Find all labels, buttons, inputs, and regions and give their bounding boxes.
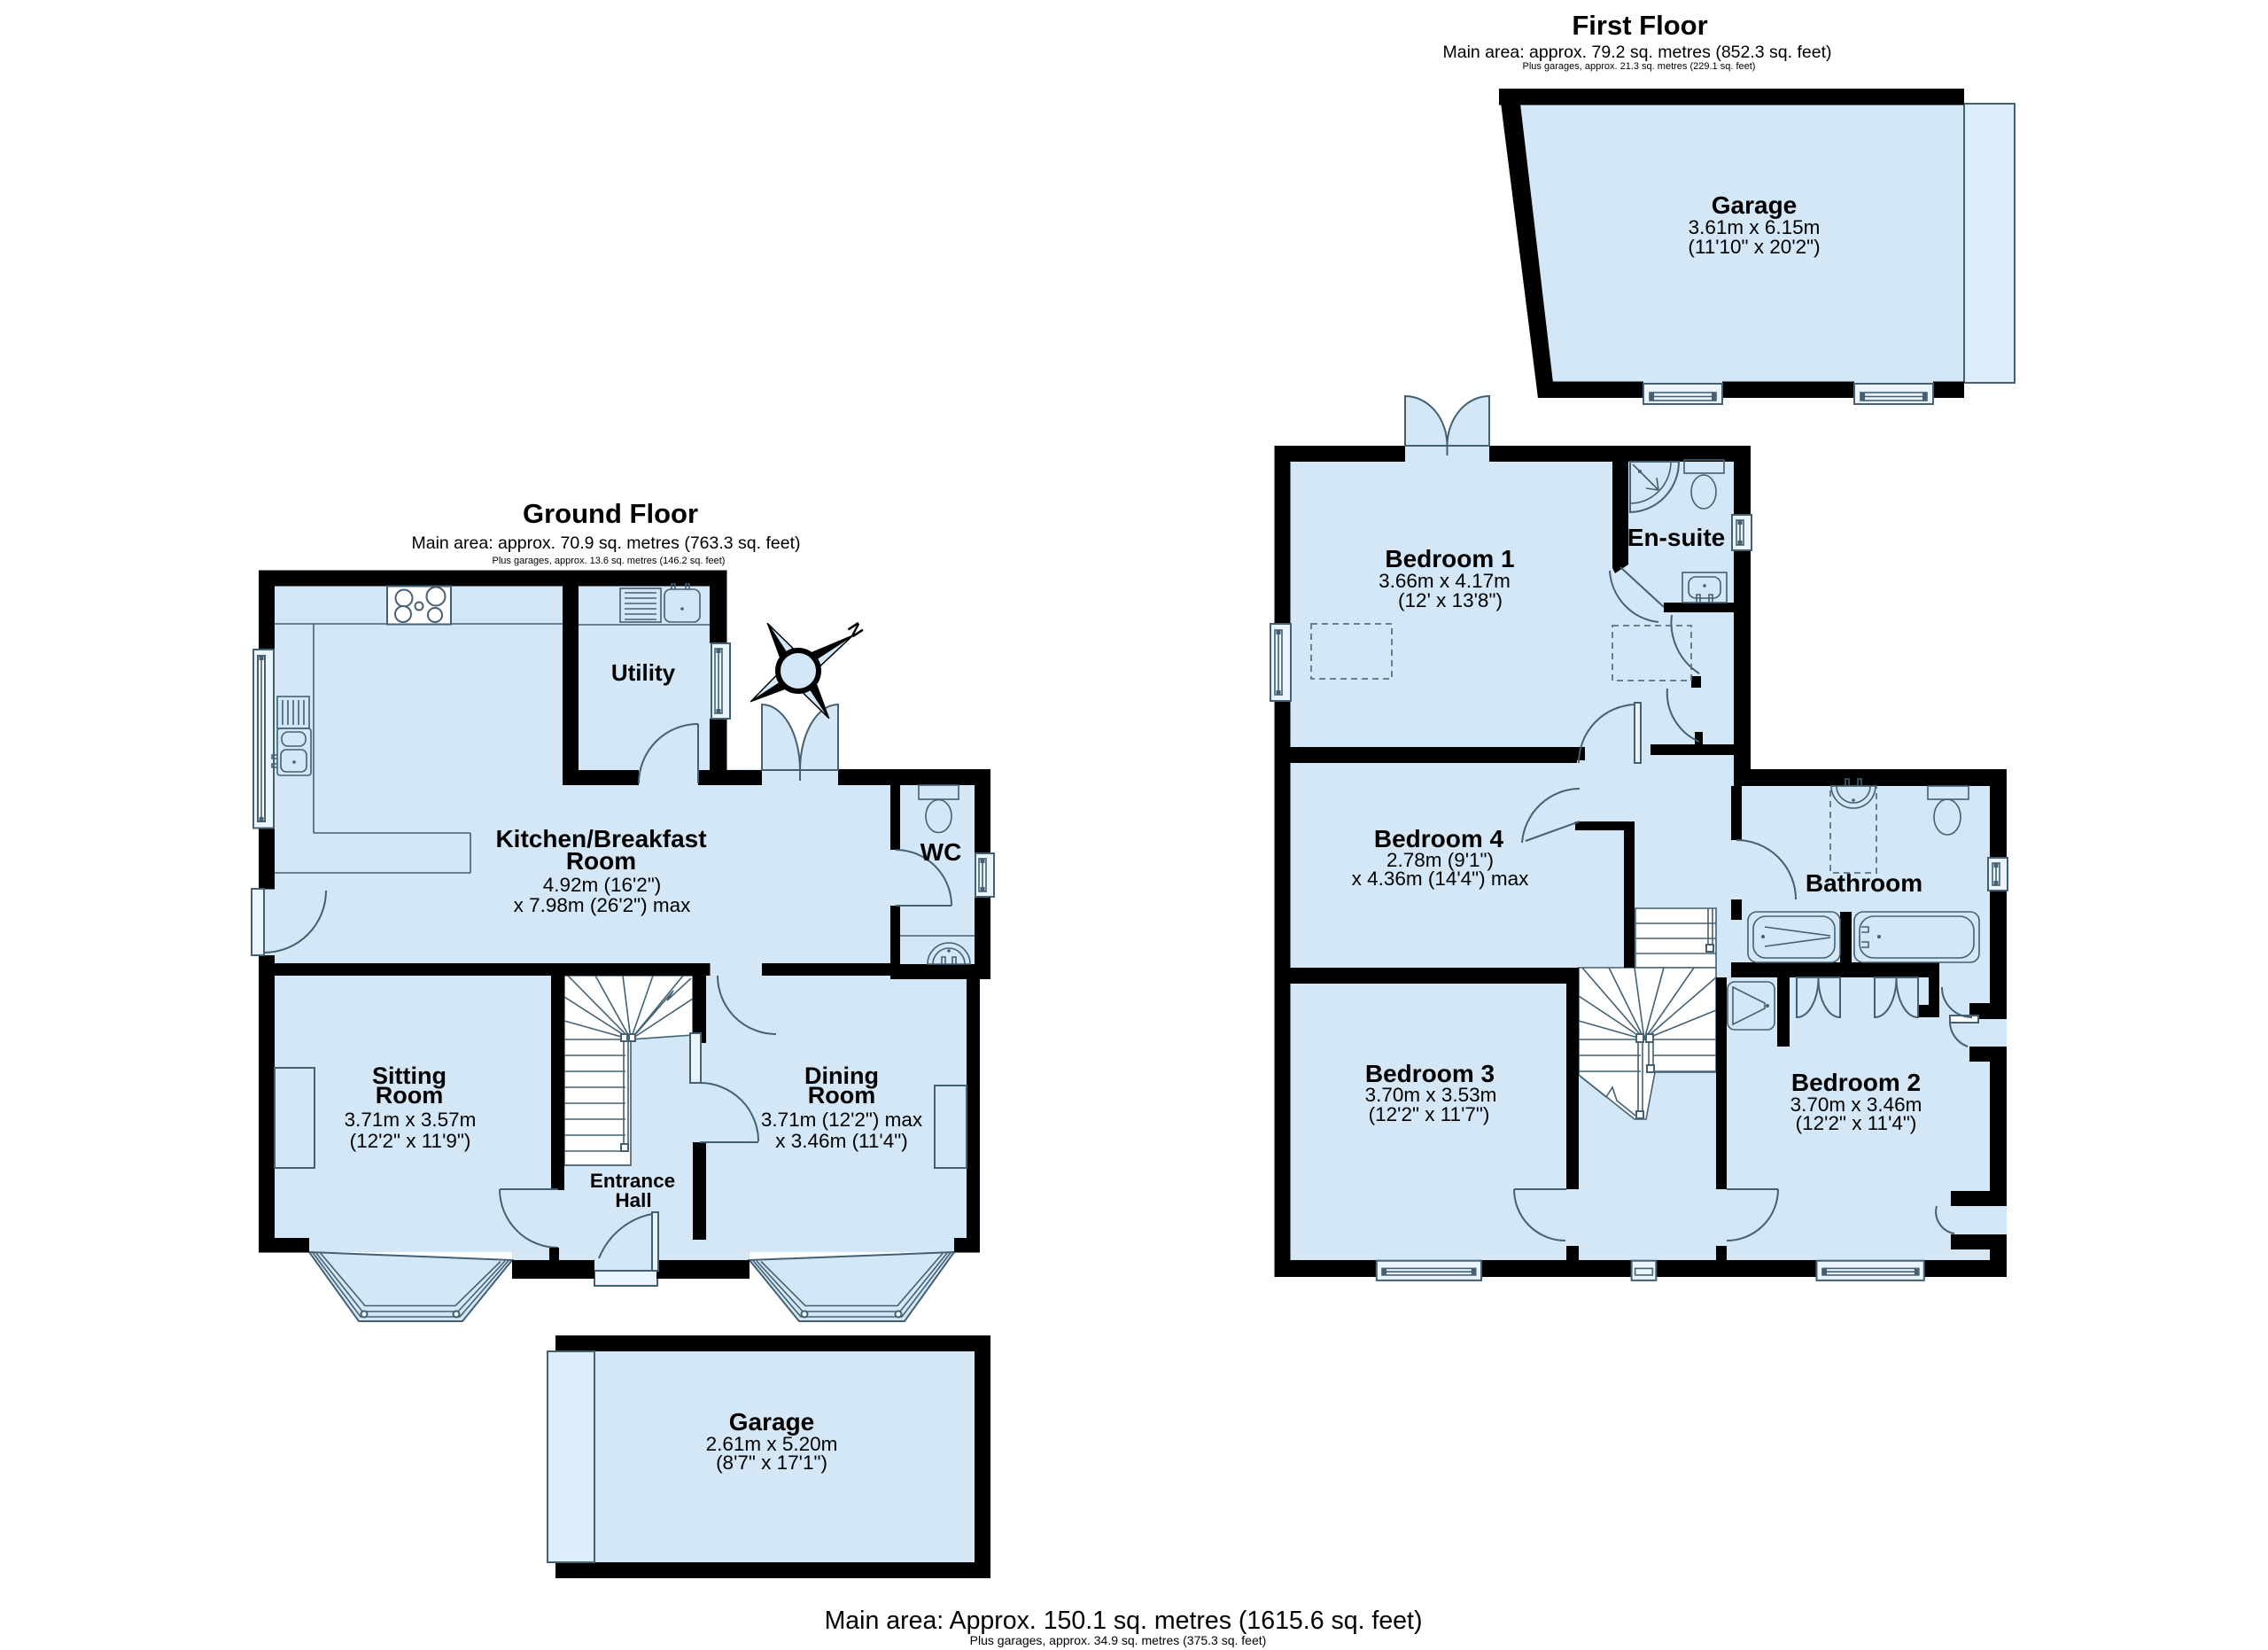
svg-text:x 3.46m (11'4"): x 3.46m (11'4") xyxy=(775,1130,907,1152)
svg-text:Main area: approx. 70.9 sq. me: Main area: approx. 70.9 sq. metres (763.… xyxy=(412,533,801,553)
svg-text:Garage: Garage xyxy=(729,1408,815,1436)
svg-text:Plus garages, approx. 34.9 sq.: Plus garages, approx. 34.9 sq. metres (3… xyxy=(970,1633,1267,1647)
svg-text:(12'2" x 11'4"): (12'2" x 11'4") xyxy=(1796,1112,1917,1134)
svg-text:Room: Room xyxy=(566,847,636,875)
svg-text:Room: Room xyxy=(808,1082,876,1109)
svg-text:(12'2" x 11'7"): (12'2" x 11'7") xyxy=(1369,1103,1490,1125)
svg-text:Ground Floor: Ground Floor xyxy=(523,498,698,529)
svg-text:WC: WC xyxy=(920,838,962,866)
svg-text:3.71m (12'2") max: 3.71m (12'2") max xyxy=(761,1109,923,1131)
svg-text:Bedroom 2: Bedroom 2 xyxy=(1791,1069,1921,1096)
svg-text:Bathroom: Bathroom xyxy=(1806,869,1922,897)
svg-text:Main area: approx. 79.2 sq. me: Main area: approx. 79.2 sq. metres (852.… xyxy=(1443,43,1832,62)
svg-text:Plus garages, approx. 13.6 sq.: Plus garages, approx. 13.6 sq. metres (1… xyxy=(493,556,726,566)
svg-text:Plus garages, approx. 21.3 sq.: Plus garages, approx. 21.3 sq. metres (2… xyxy=(1523,61,1756,72)
svg-text:(11'10" x 20'2"): (11'10" x 20'2") xyxy=(1688,236,1820,258)
svg-text:3.71m x 3.57m: 3.71m x 3.57m xyxy=(345,1109,477,1131)
svg-text:Room: Room xyxy=(376,1082,444,1109)
svg-text:(8'7" x 17'1"): (8'7" x 17'1") xyxy=(716,1452,827,1474)
svg-text:Utility: Utility xyxy=(611,659,676,686)
svg-text:x 4.36m (14'4") max: x 4.36m (14'4") max xyxy=(1352,868,1530,890)
svg-text:Hall: Hall xyxy=(615,1189,651,1211)
svg-text:En-suite: En-suite xyxy=(1627,524,1725,551)
svg-text:First Floor: First Floor xyxy=(1572,10,1707,41)
svg-text:4.92m (16'2"): 4.92m (16'2") xyxy=(543,874,662,896)
svg-text:Main area: Approx. 150.1 sq. m: Main area: Approx. 150.1 sq. metres (161… xyxy=(825,1607,1423,1635)
svg-text:Garage: Garage xyxy=(1712,191,1798,219)
svg-text:x 7.98m (26'2") max: x 7.98m (26'2") max xyxy=(514,894,692,916)
svg-text:(12' x 13'8"): (12' x 13'8") xyxy=(1398,589,1503,611)
svg-text:(12'2" x 11'9"): (12'2" x 11'9") xyxy=(350,1130,471,1152)
svg-text:Bedroom 1: Bedroom 1 xyxy=(1385,545,1514,572)
